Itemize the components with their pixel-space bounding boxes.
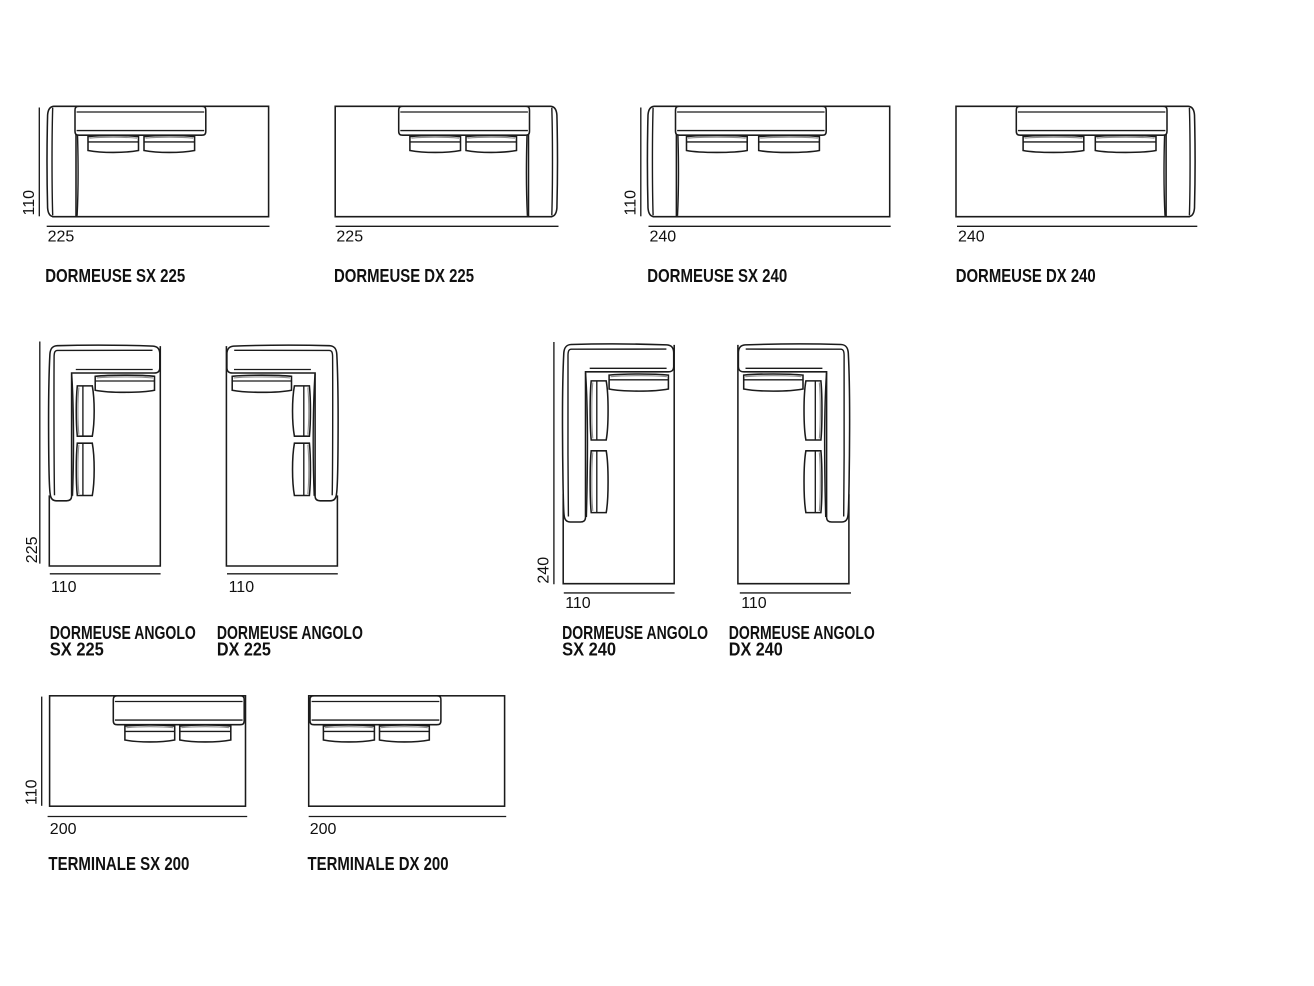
svg-text:TERMINALE DX 200: TERMINALE DX 200: [308, 853, 449, 874]
svg-text:110: 110: [21, 190, 38, 216]
svg-text:DORMEUSE DX 225: DORMEUSE DX 225: [334, 265, 474, 286]
svg-text:110: 110: [565, 595, 591, 612]
svg-text:DX 240: DX 240: [729, 639, 783, 660]
svg-text:110: 110: [51, 579, 77, 596]
svg-text:200: 200: [50, 821, 77, 838]
svg-text:SX 225: SX 225: [50, 639, 104, 660]
svg-text:110: 110: [623, 190, 640, 216]
svg-text:225: 225: [336, 229, 363, 246]
svg-text:240: 240: [650, 229, 677, 246]
svg-text:225: 225: [24, 536, 41, 563]
svg-text:TERMINALE SX 200: TERMINALE SX 200: [48, 853, 189, 874]
svg-text:DX 225: DX 225: [217, 639, 271, 660]
svg-text:225: 225: [48, 229, 75, 246]
svg-text:DORMEUSE DX 240: DORMEUSE DX 240: [956, 265, 1096, 286]
svg-text:110: 110: [23, 779, 40, 805]
svg-text:DORMEUSE SX 225: DORMEUSE SX 225: [45, 265, 185, 286]
svg-text:240: 240: [958, 229, 985, 246]
svg-text:110: 110: [741, 595, 767, 612]
svg-text:110: 110: [229, 579, 255, 596]
svg-text:DORMEUSE SX 240: DORMEUSE SX 240: [647, 265, 787, 286]
svg-text:200: 200: [310, 821, 337, 838]
svg-text:SX 240: SX 240: [562, 639, 616, 660]
svg-text:240: 240: [536, 557, 553, 584]
